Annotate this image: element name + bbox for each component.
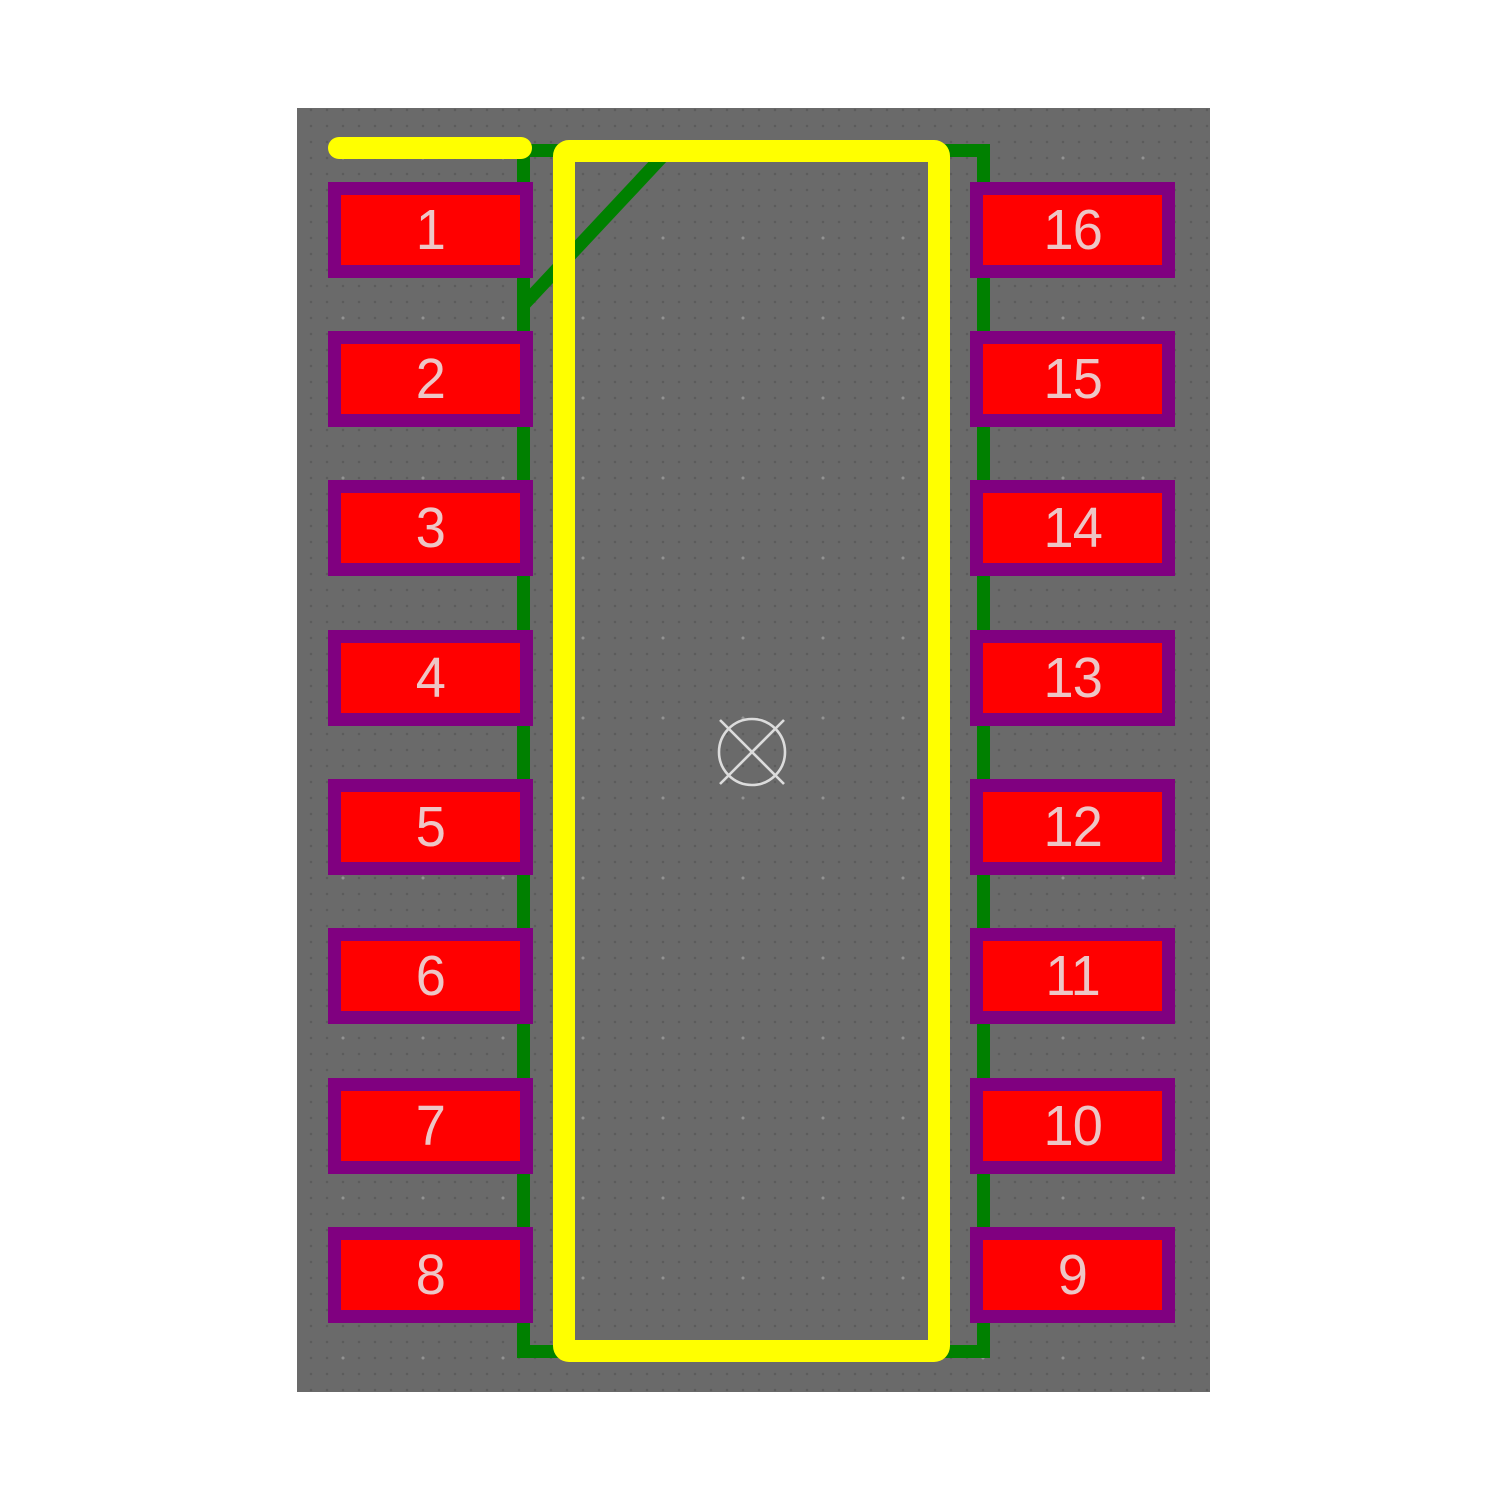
pad-number: 6	[416, 948, 445, 1005]
pad-16[interactable]: 16	[970, 182, 1175, 278]
pad-number: 14	[1043, 500, 1101, 557]
pad-3[interactable]: 3	[328, 480, 533, 576]
pad-13[interactable]: 13	[970, 630, 1175, 726]
pad-number: 12	[1043, 799, 1101, 856]
pad-12[interactable]: 12	[970, 779, 1175, 875]
pad-11[interactable]: 11	[970, 928, 1175, 1024]
pad-number: 7	[416, 1098, 445, 1155]
pad-number: 8	[416, 1247, 445, 1304]
pad-2[interactable]: 2	[328, 331, 533, 427]
pad-14[interactable]: 14	[970, 480, 1175, 576]
pad-number: 2	[416, 351, 445, 408]
pad-number: 5	[416, 799, 445, 856]
pad-number: 16	[1043, 202, 1101, 259]
pad-number: 1	[416, 202, 445, 259]
pad-1[interactable]: 1	[328, 182, 533, 278]
pad-5[interactable]: 5	[328, 779, 533, 875]
pad-9[interactable]: 9	[970, 1227, 1175, 1323]
silkscreen-pin1-bar[interactable]	[328, 137, 532, 159]
pad-10[interactable]: 10	[970, 1078, 1175, 1174]
pad-8[interactable]: 8	[328, 1227, 533, 1323]
pad-4[interactable]: 4	[328, 630, 533, 726]
pad-15[interactable]: 15	[970, 331, 1175, 427]
pad-number: 3	[416, 500, 445, 557]
pad-number: 4	[416, 650, 445, 707]
pad-number: 11	[1045, 948, 1099, 1005]
pad-number: 10	[1043, 1098, 1101, 1155]
pad-6[interactable]: 6	[328, 928, 533, 1024]
pad-number: 15	[1043, 351, 1101, 408]
pad-7[interactable]: 7	[328, 1078, 533, 1174]
pad-number: 9	[1058, 1247, 1087, 1304]
pcb-canvas[interactable]: 12345678161514131211109	[297, 108, 1210, 1392]
origin-marker-icon[interactable]	[702, 702, 802, 802]
pad-number: 13	[1043, 650, 1101, 707]
